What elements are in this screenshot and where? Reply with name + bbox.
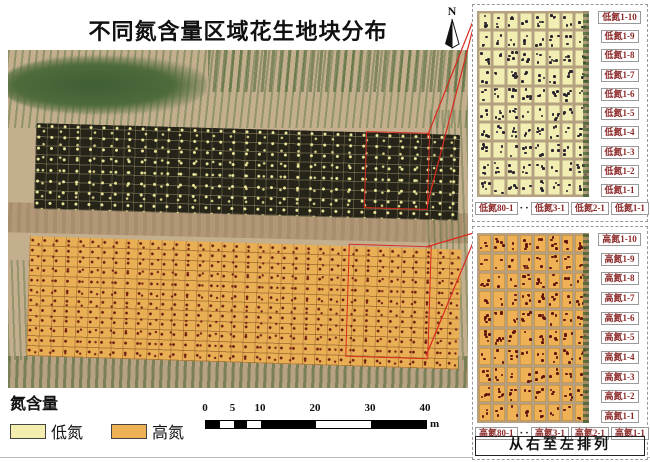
plant-dot (525, 146, 528, 149)
plant-dot (568, 59, 571, 62)
plant-dot (511, 71, 514, 74)
field-plot (562, 385, 574, 402)
plant-dot (485, 150, 488, 153)
plant-dot (569, 393, 572, 396)
plant-dot (566, 43, 569, 46)
field-plot (534, 273, 546, 290)
plant-dot (553, 361, 556, 364)
plant-dot (481, 91, 484, 94)
plant-dot (522, 295, 525, 298)
figure-title: 不同氮含量区域花生地块分布 (8, 14, 468, 46)
plant-dot (563, 111, 566, 114)
field-plot (562, 404, 574, 421)
field-plot (493, 291, 505, 308)
plant-dot (565, 35, 568, 38)
field-plot (534, 31, 546, 47)
plant-dot (567, 127, 570, 130)
plant-dot (580, 276, 583, 279)
plant-dot (484, 15, 487, 18)
plant-dot (483, 166, 486, 169)
field-plot (507, 235, 519, 252)
field-plot (534, 291, 546, 308)
scalebar-segment (234, 421, 248, 428)
field-plot (507, 105, 519, 121)
scalebar: 0510203040 m (205, 402, 450, 430)
inset-row-label: 低氮1-7 (601, 69, 639, 82)
plant-dot (486, 412, 489, 415)
plant-dot (563, 93, 566, 96)
plant-dot (523, 53, 526, 56)
field-plot (548, 68, 560, 84)
plant-dot (481, 396, 484, 399)
plant-dot (497, 95, 500, 98)
field-plot (534, 13, 546, 29)
plant-dot (578, 303, 581, 306)
field-plot (562, 160, 574, 176)
plant-dot (498, 396, 501, 399)
field-plot (534, 385, 546, 402)
plant-dot (500, 312, 503, 315)
plant-dot (556, 135, 559, 138)
plant-dot (508, 265, 511, 268)
plant-dot (496, 26, 499, 29)
plant-dot (541, 189, 544, 192)
plant-dot (550, 323, 553, 326)
plant-dot (526, 35, 529, 38)
plant-dot (555, 314, 558, 317)
field-plot (534, 50, 546, 66)
field-plot (479, 179, 491, 195)
plant-dot (488, 182, 491, 185)
field-plot (507, 273, 519, 290)
plant-dot (578, 21, 581, 24)
plant-dot (496, 339, 499, 342)
plant-dot (539, 133, 542, 136)
field-plot (520, 50, 532, 66)
field-plot (479, 329, 491, 346)
field-plot (520, 235, 532, 252)
legend-label: 高氮 (152, 419, 184, 443)
field-plot (548, 367, 560, 384)
scalebar-unit: m (430, 418, 439, 430)
field-plot (520, 31, 532, 47)
plant-dot (525, 302, 528, 305)
plant-dot (569, 168, 572, 171)
field-plot (493, 87, 505, 103)
plant-dot (524, 331, 527, 334)
plant-dot (566, 248, 569, 251)
plant-dot (508, 55, 511, 58)
plant-dot (563, 16, 566, 19)
plant-dot (496, 379, 499, 382)
plant-dot (526, 351, 529, 354)
legend-items: 低氮高氮 (10, 419, 184, 443)
north-arrow-icon (443, 17, 461, 51)
plant-dot (555, 282, 558, 285)
field-plot (562, 68, 574, 84)
plant-dot (510, 186, 513, 189)
field-plot (479, 385, 491, 402)
plant-dot (522, 275, 525, 278)
plant-dot (564, 333, 567, 336)
plant-dot (495, 73, 498, 76)
plant-dot (567, 75, 570, 78)
plant-dot (486, 113, 489, 116)
plant-dot (540, 282, 543, 285)
field-plot (562, 291, 574, 308)
plant-dot (555, 170, 558, 173)
field-plot (534, 404, 546, 421)
plant-dot (549, 61, 552, 64)
plant-dot (537, 25, 540, 28)
plant-dot (482, 99, 485, 102)
plant-dot (485, 146, 488, 149)
plant-dot (525, 71, 528, 74)
plant-dot (551, 312, 554, 315)
field-plot (507, 329, 519, 346)
plant-dot (497, 285, 500, 288)
field-plot (479, 291, 491, 308)
field-plot (548, 385, 560, 402)
plant-dot (563, 149, 566, 152)
plant-dot (527, 58, 530, 61)
plant-dot (513, 43, 516, 46)
plant-dot (514, 131, 517, 134)
plant-dot (570, 23, 573, 26)
plant-dot (538, 314, 541, 317)
field-plot (493, 273, 505, 290)
plant-dot (529, 243, 532, 246)
plant-dot (570, 70, 573, 73)
plant-dot (484, 242, 487, 245)
plant-dot (508, 350, 511, 353)
inset-low-nitrogen: 低氮1-10低氮1-9低氮1-8低氮1-7低氮1-6低氮1-5低氮1-4低氮1-… (472, 4, 648, 222)
plant-dot (508, 44, 511, 47)
plant-dot (535, 396, 538, 399)
plant-dot (482, 415, 485, 418)
plant-dot (495, 368, 498, 371)
plant-dot (542, 297, 545, 300)
plant-dot (553, 60, 556, 63)
field-plot (507, 87, 519, 103)
plant-dot (551, 44, 554, 47)
field-plot (548, 404, 560, 421)
plant-dot (512, 171, 515, 174)
plant-dot (511, 18, 514, 21)
field-plot (562, 123, 574, 139)
plant-dot (481, 353, 484, 356)
field-plot (479, 68, 491, 84)
plant-dot (577, 316, 580, 319)
plant-dot (527, 294, 530, 297)
plant-dot (529, 311, 532, 314)
inset-row-label: 低氮1-2 (601, 165, 639, 178)
plant-dot (565, 99, 568, 102)
plant-dot (568, 406, 571, 409)
plant-dot (496, 167, 499, 170)
plant-dot (565, 94, 568, 97)
plant-dot (563, 59, 566, 62)
map-vegetation-band (208, 50, 468, 92)
inset-row-label: 高氮1-5 (601, 331, 639, 344)
plant-dot (523, 166, 526, 169)
plant-dot (495, 116, 498, 119)
plant-dot (481, 80, 484, 83)
plant-dot (485, 81, 488, 84)
plant-dot (527, 111, 530, 114)
high-inset-extent-rect (345, 244, 432, 360)
plant-dot (569, 301, 572, 304)
plant-dot (549, 56, 552, 59)
map-tree-cluster (8, 56, 207, 114)
field-plot (534, 348, 546, 365)
plant-dot (484, 299, 487, 302)
plant-dot (539, 43, 542, 46)
field-plot (479, 13, 491, 29)
plant-dot (481, 147, 484, 150)
plant-dot (527, 274, 530, 277)
field-plot (534, 367, 546, 384)
field-plot (520, 329, 532, 346)
scalebar-segment (220, 421, 234, 428)
field-plot (493, 310, 505, 327)
plant-dot (570, 375, 573, 378)
plant-dot (514, 111, 517, 114)
plant-dot (556, 356, 559, 359)
plant-dot (485, 245, 488, 248)
plant-dot (542, 388, 545, 391)
field-plot (479, 142, 491, 158)
plant-dot (555, 339, 558, 342)
ellipsis-dot: · (525, 203, 529, 214)
plant-dot (488, 318, 491, 321)
plant-dot (552, 113, 555, 116)
plant-dot (569, 388, 572, 391)
plant-dot (539, 108, 542, 111)
scalebar-tick: 5 (230, 402, 236, 414)
plant-dot (484, 394, 487, 397)
plant-dot (501, 374, 504, 377)
plant-dot (555, 117, 558, 120)
plant-dot (552, 414, 555, 417)
legend-swatch (10, 424, 46, 439)
field-plot (534, 160, 546, 176)
field-plot (507, 348, 519, 365)
plant-dot (539, 258, 542, 261)
plant-dot (563, 153, 566, 156)
plant-dot (556, 260, 559, 263)
inset-row-label: 低氮1-5 (601, 107, 639, 120)
plant-dot (484, 333, 487, 336)
plant-dot (537, 61, 540, 64)
field-plot (548, 105, 560, 121)
plant-dot (541, 21, 544, 24)
plant-dot (508, 164, 511, 167)
figure-root: 不同氮含量区域花生地块分布 N 氮含量 低氮高氮 0510203040 (0, 0, 650, 462)
plant-dot (511, 135, 514, 138)
plant-dot (529, 146, 532, 149)
field-plot (548, 179, 560, 195)
plant-dot (495, 410, 498, 413)
plant-dot (484, 318, 487, 321)
scalebar-ticks: 0510203040 (205, 402, 450, 416)
plant-dot (579, 41, 582, 44)
plant-dot (551, 244, 554, 247)
plant-dot (563, 319, 566, 322)
plant-dot (579, 146, 582, 149)
field-plot (562, 367, 574, 384)
field-plot (534, 329, 546, 346)
inset-row-label: 低氮1-8 (601, 49, 639, 62)
inset-high-nitrogen: 高氮1-10高氮1-9高氮1-8高氮1-7高氮1-6高氮1-5高氮1-4高氮1-… (472, 226, 648, 460)
field-plot (520, 105, 532, 121)
inset-row-label: 高氮1-9 (601, 253, 639, 266)
field-plot (493, 13, 505, 29)
field-plot (493, 385, 505, 402)
plant-dot (535, 378, 538, 381)
field-plot (520, 254, 532, 271)
plant-dot (555, 125, 558, 128)
plant-dot (523, 239, 526, 242)
plant-dot (551, 149, 554, 152)
inset-row-label: 低氮1-9 (601, 30, 639, 43)
plant-dot (500, 151, 503, 154)
plant-dot (522, 115, 525, 118)
field-plot (479, 50, 491, 66)
plant-dot (567, 256, 570, 259)
plant-dot (565, 373, 568, 376)
field-plot (520, 160, 532, 176)
plant-dot (514, 294, 517, 297)
plant-dot (564, 395, 567, 398)
scalebar-tick: 20 (310, 402, 321, 414)
plant-dot (555, 247, 558, 250)
field-plot (534, 123, 546, 139)
plant-dot (515, 51, 518, 54)
plant-dot (525, 88, 528, 91)
plant-dot (569, 35, 572, 38)
field-plot (548, 273, 560, 290)
plant-dot (482, 185, 485, 188)
plant-dot (496, 42, 499, 45)
plant-dot (529, 299, 532, 302)
plant-dot (485, 109, 488, 112)
plant-dot (528, 164, 531, 167)
field-plot (548, 31, 560, 47)
field-plot (479, 87, 491, 103)
plant-dot (502, 115, 505, 118)
plant-dot (510, 389, 513, 392)
plant-dot (508, 340, 511, 343)
plant-dot (553, 186, 556, 189)
plant-dot (570, 284, 573, 287)
plant-dot (537, 278, 540, 281)
plant-dot (484, 181, 487, 184)
field-plot (493, 50, 505, 66)
plant-dot (499, 127, 502, 130)
plant-dot (549, 335, 552, 338)
legend-heading: 氮含量 (10, 390, 184, 414)
field-plot (534, 87, 546, 103)
plant-dot (563, 338, 566, 341)
plant-dot (486, 374, 489, 377)
plant-dot (540, 415, 543, 418)
plant-dot (523, 265, 526, 268)
field-plot (507, 160, 519, 176)
field-plot (507, 385, 519, 402)
plant-dot (557, 407, 560, 410)
plant-dot (556, 372, 559, 375)
field-plot (562, 50, 574, 66)
plant-dot (496, 131, 499, 134)
plant-dot (542, 338, 545, 341)
plant-dot (522, 283, 525, 286)
inset-row-label: 低氮1-6 (601, 88, 639, 101)
field-plot (507, 68, 519, 84)
plant-dot (512, 57, 515, 60)
plant-dot (549, 267, 552, 270)
scalebar-tick: 30 (365, 402, 376, 414)
plant-dot (571, 332, 574, 335)
plant-dot (482, 172, 485, 175)
plant-dot (494, 162, 497, 165)
inset-high-photo (477, 233, 589, 423)
plant-dot (521, 80, 524, 83)
plant-dot (510, 39, 513, 42)
field-plot (548, 142, 560, 158)
plant-dot (512, 302, 515, 305)
plant-dot (497, 171, 500, 174)
plant-dot (500, 339, 503, 342)
plant-dot (542, 375, 545, 378)
plant-dot (487, 340, 490, 343)
plant-dot (510, 358, 513, 361)
plant-dot (502, 361, 505, 364)
plant-dot (571, 358, 574, 361)
inset-row-label: 低氮1-3 (601, 146, 639, 159)
field-plot (534, 235, 546, 252)
plant-dot (500, 259, 503, 262)
plant-dot (522, 171, 525, 174)
plant-dot (521, 352, 524, 355)
field-plot (562, 87, 574, 103)
plant-dot (508, 88, 511, 91)
plant-dot (501, 145, 504, 148)
inset-row-label: 高氮1-3 (601, 371, 639, 384)
inset-row-label: 高氮1-2 (601, 390, 639, 403)
plant-dot (525, 243, 528, 246)
plant-dot (529, 338, 532, 341)
plant-dot (555, 59, 558, 62)
low-plot-grid (477, 11, 589, 197)
plant-dot (497, 17, 500, 20)
aerial-map (8, 50, 468, 388)
inset-row-label: 高氮1-8 (601, 272, 639, 285)
plant-dot (514, 389, 517, 392)
plant-dot (510, 399, 513, 402)
plant-dot (497, 414, 500, 417)
field-plot (507, 310, 519, 327)
inset-row-label: 低氮1-4 (601, 126, 639, 139)
plant-dot (528, 390, 531, 393)
plant-dot (526, 410, 529, 413)
plant-dot (496, 23, 499, 26)
field-plot (479, 31, 491, 47)
plant-dot (577, 389, 580, 392)
plant-dot (516, 414, 519, 417)
plant-dot (549, 39, 552, 42)
plant-dot (486, 370, 489, 373)
